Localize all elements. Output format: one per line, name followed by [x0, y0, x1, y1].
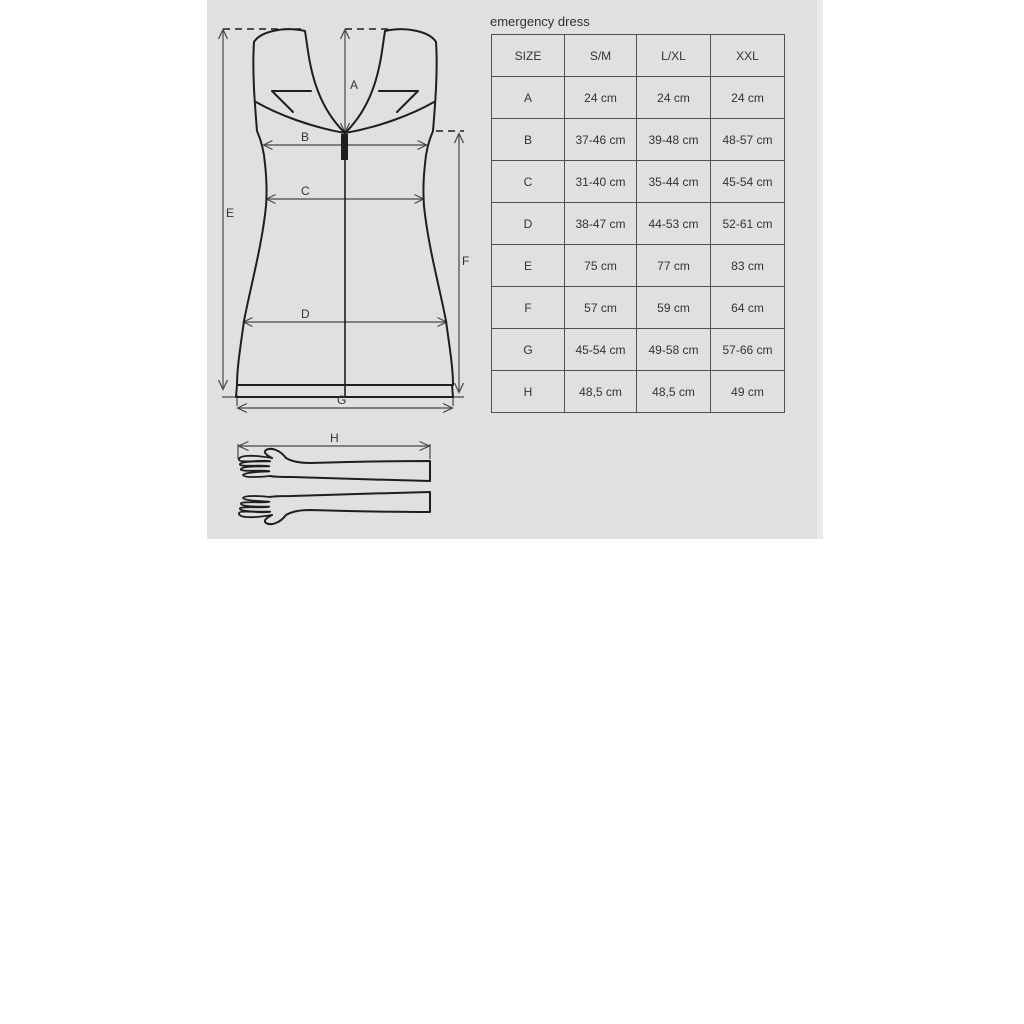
label-h: H [330, 431, 339, 445]
glove-top-fingers [239, 456, 272, 477]
row-label: A [492, 77, 565, 118]
column-header-lxl: L/XL [637, 35, 711, 76]
table-cell: 52-61 cm [711, 203, 784, 244]
table-cell: 48,5 cm [565, 371, 637, 412]
row-label: F [492, 287, 565, 328]
label-g: G [337, 393, 346, 407]
table-cell: 57-66 cm [711, 329, 784, 370]
table-cell: 24 cm [711, 77, 784, 118]
table-cell: 77 cm [637, 245, 711, 286]
table-cell: 38-47 cm [565, 203, 637, 244]
label-b: B [301, 130, 309, 144]
table-row: E 75 cm 77 cm 83 cm [492, 245, 784, 287]
table-cell: 45-54 cm [565, 329, 637, 370]
zipper-pull-icon [341, 134, 348, 160]
row-label: G [492, 329, 565, 370]
table-cell: 57 cm [565, 287, 637, 328]
glove-bottom-fingers [239, 496, 272, 517]
label-e: E [226, 206, 234, 220]
size-table: SIZE S/M L/XL XXL A 24 cm 24 cm 24 cm B … [491, 34, 785, 413]
row-label: B [492, 119, 565, 160]
label-a: A [350, 78, 358, 92]
row-label: D [492, 203, 565, 244]
table-cell: 59 cm [637, 287, 711, 328]
table-row: F 57 cm 59 cm 64 cm [492, 287, 784, 329]
column-header-xxl: XXL [711, 35, 784, 76]
page-title: emergency dress [490, 14, 590, 29]
table-cell: 35-44 cm [637, 161, 711, 202]
screenshot-root: A B C D E F G H emergency dress SIZE S/M… [0, 0, 1024, 1024]
table-row: D 38-47 cm 44-53 cm 52-61 cm [492, 203, 784, 245]
table-row: B 37-46 cm 39-48 cm 48-57 cm [492, 119, 784, 161]
row-label: C [492, 161, 565, 202]
dress-left-side [237, 42, 267, 385]
table-cell: 24 cm [565, 77, 637, 118]
row-label: E [492, 245, 565, 286]
table-row: A 24 cm 24 cm 24 cm [492, 77, 784, 119]
table-row: C 31-40 cm 35-44 cm 45-54 cm [492, 161, 784, 203]
dress-right-side [423, 42, 453, 385]
table-cell: 45-54 cm [711, 161, 784, 202]
table-cell: 49-58 cm [637, 329, 711, 370]
dress-left-lapel [254, 29, 345, 133]
table-cell: 49 cm [711, 371, 784, 412]
table-header-row: SIZE S/M L/XL XXL [492, 35, 784, 77]
column-header-sm: S/M [565, 35, 637, 76]
table-cell: 39-48 cm [637, 119, 711, 160]
label-d: D [301, 307, 310, 321]
dress-right-lapel [345, 29, 436, 133]
table-cell: 48-57 cm [711, 119, 784, 160]
label-f: F [462, 254, 469, 268]
table-cell: 83 cm [711, 245, 784, 286]
glove-top-outline [265, 449, 430, 481]
dashed-construction-lines [223, 29, 464, 131]
table-cell: 48,5 cm [637, 371, 711, 412]
row-label: H [492, 371, 565, 412]
table-cell: 37-46 cm [565, 119, 637, 160]
table-cell: 75 cm [565, 245, 637, 286]
column-header-size: SIZE [492, 35, 565, 76]
table-row: H 48,5 cm 48,5 cm 49 cm [492, 371, 784, 412]
label-c: C [301, 184, 310, 198]
size-chart-panel: A B C D E F G H emergency dress SIZE S/M… [207, 0, 823, 539]
table-cell: 64 cm [711, 287, 784, 328]
table-cell: 44-53 cm [637, 203, 711, 244]
table-cell: 24 cm [637, 77, 711, 118]
table-row: G 45-54 cm 49-58 cm 57-66 cm [492, 329, 784, 371]
table-cell: 31-40 cm [565, 161, 637, 202]
glove-bottom-outline [265, 492, 430, 524]
gloves-drawing [239, 449, 430, 524]
